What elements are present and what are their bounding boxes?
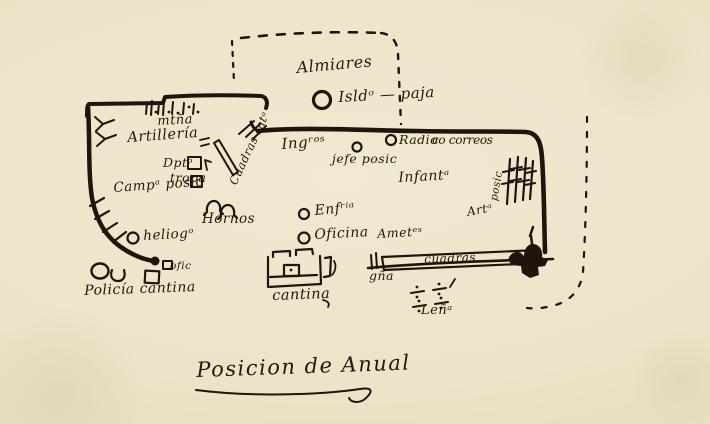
heliograph-circle-icon xyxy=(128,233,139,244)
perimeter-dashed-right xyxy=(527,117,587,308)
caption-flourish xyxy=(196,388,371,402)
position-gun-icons xyxy=(502,157,536,204)
perimeter-dashed-top xyxy=(232,32,401,124)
label-infanteria: Infantᵃ xyxy=(398,168,450,185)
label-ametralladoras: Ametᵉˢ xyxy=(377,226,423,241)
canteen-building-icon xyxy=(268,249,335,287)
label-cuadras: cuadras xyxy=(424,251,476,265)
straw-ring-icon xyxy=(314,92,331,109)
label-jefe-posicion: jefe posic xyxy=(332,153,397,166)
label-deposito: Dptᵒ xyxy=(163,157,193,170)
label-guarnicion: gña xyxy=(369,270,394,283)
radio-circle-icon xyxy=(386,135,396,145)
label-heliografo: heliogᵒ xyxy=(143,227,194,243)
label-cantina: cantina xyxy=(272,287,331,304)
fork-icons xyxy=(95,117,116,146)
label-hornos: Hornos xyxy=(202,213,255,227)
label-policia-cantina: Policía cantina xyxy=(84,280,196,298)
label-oficina-small: ofic xyxy=(170,261,191,272)
label-oficina: Oficina xyxy=(314,225,369,242)
label-enfermeria: Enfʳⁱᵃ xyxy=(314,200,355,217)
office-circle-icon xyxy=(299,233,310,244)
label-lena: Leñᵃ xyxy=(421,304,453,317)
infirmary-circle-icon xyxy=(299,209,309,219)
label-ingenieros: Ingʳᵒˢ xyxy=(281,134,326,152)
label-correos: co correos xyxy=(432,134,493,146)
map-canvas: Almiares Isldᵒ — paja Ingʳᵒˢ jefe posic … xyxy=(0,0,710,424)
gate-blockhouse-icon xyxy=(508,227,548,278)
